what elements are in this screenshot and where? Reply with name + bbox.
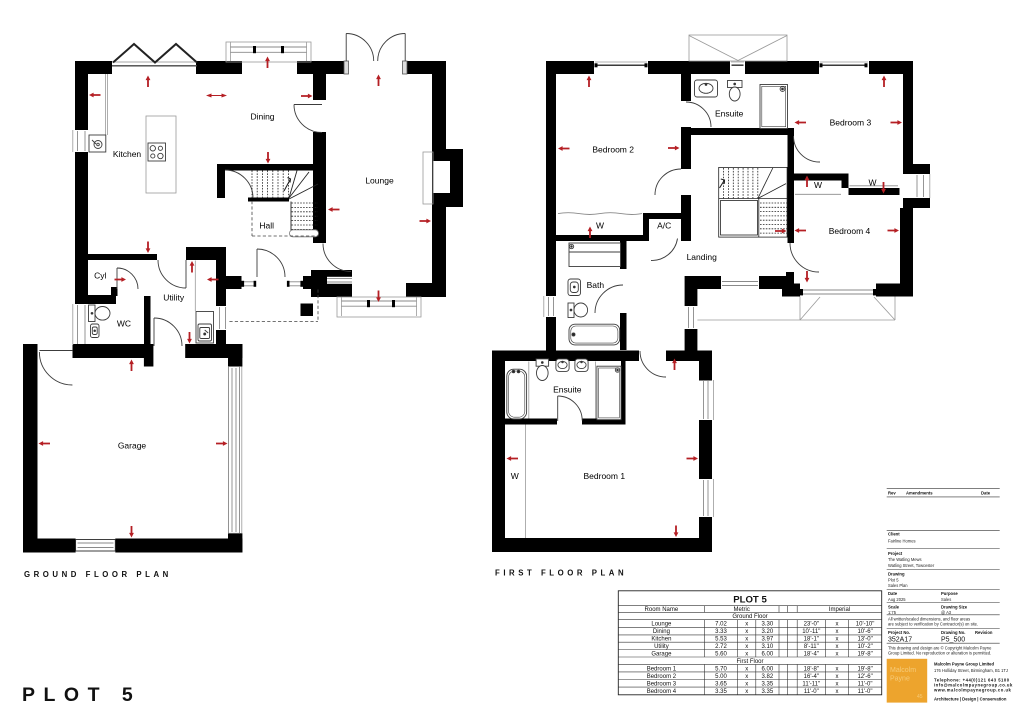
svg-text:Malcolm Payne Group Limited: Malcolm Payne Group Limited — [934, 662, 994, 667]
svg-text:Plot 5: Plot 5 — [888, 577, 899, 582]
svg-text:x: x — [836, 689, 839, 695]
svg-text:x: x — [836, 674, 839, 680]
svg-text:Sales: Sales — [941, 597, 951, 602]
svg-text:Bedroom 3: Bedroom 3 — [647, 682, 677, 688]
svg-text:WC: WC — [117, 319, 131, 329]
svg-text:Architecture | Design | Conser: Architecture | Design | Conservation — [934, 697, 1007, 702]
svg-text:Garage: Garage — [118, 441, 147, 451]
svg-text:Bedroom 2: Bedroom 2 — [592, 145, 634, 155]
svg-text:18'-8": 18'-8" — [804, 667, 819, 673]
svg-text:11'-11": 11'-11" — [802, 682, 820, 688]
svg-text:Imperial: Imperial — [829, 607, 850, 613]
svg-text:www.malcolmpaynegroup.co.uk: www.malcolmpaynegroup.co.uk — [933, 688, 1012, 693]
svg-text:Kitchen: Kitchen — [113, 149, 142, 159]
svg-text:x: x — [836, 622, 839, 628]
svg-text:Metric: Metric — [734, 607, 750, 613]
svg-text:Purpose: Purpose — [941, 591, 958, 596]
svg-text:x: x — [836, 652, 839, 658]
svg-text:Payne: Payne — [890, 676, 910, 683]
svg-text:Date: Date — [888, 591, 898, 596]
svg-text:3.65: 3.65 — [715, 682, 727, 688]
svg-text:6.00: 6.00 — [762, 667, 774, 673]
svg-text:Bedroom 2: Bedroom 2 — [647, 674, 677, 680]
svg-text:12'-6": 12'-6" — [857, 674, 872, 680]
svg-text:Dining: Dining — [653, 629, 670, 635]
svg-text:3.82: 3.82 — [762, 674, 774, 680]
svg-text:W: W — [814, 180, 822, 190]
svg-text:Kitchen: Kitchen — [651, 637, 671, 643]
svg-text:5.53: 5.53 — [715, 637, 727, 643]
svg-text:8'-11": 8'-11" — [804, 644, 819, 650]
svg-text:3.33: 3.33 — [715, 629, 727, 635]
svg-text:Bedroom 1: Bedroom 1 — [584, 471, 626, 481]
svg-text:x: x — [745, 637, 748, 643]
svg-text:19'-8": 19'-8" — [857, 652, 872, 658]
svg-text:Project No.: Project No. — [888, 630, 910, 635]
svg-text:16'-4": 16'-4" — [804, 674, 819, 680]
svg-text:18'-1": 18'-1" — [804, 637, 819, 643]
svg-text:FIRST FLOOR PLAN: FIRST FLOOR PLAN — [495, 569, 627, 578]
svg-text:W: W — [511, 471, 519, 481]
svg-text:Dining: Dining — [250, 112, 274, 122]
svg-text:Sales Plan: Sales Plan — [888, 583, 908, 588]
svg-text:10'-11": 10'-11" — [802, 629, 820, 635]
svg-text:19'-8": 19'-8" — [857, 667, 872, 673]
svg-text:x: x — [745, 674, 748, 680]
svg-text:Lounge: Lounge — [365, 176, 394, 186]
svg-text:3.20: 3.20 — [762, 629, 774, 635]
svg-text:5.00: 5.00 — [715, 674, 727, 680]
svg-text:Drawing: Drawing — [888, 572, 905, 577]
svg-text:10'-10": 10'-10" — [856, 622, 875, 628]
svg-text:x: x — [745, 622, 748, 628]
svg-text:3.35: 3.35 — [762, 682, 774, 688]
svg-text:3.35: 3.35 — [762, 689, 774, 695]
svg-text:Aug 2025: Aug 2025 — [888, 597, 906, 602]
svg-text:x: x — [836, 644, 839, 650]
svg-text:Amendments: Amendments — [906, 491, 933, 496]
svg-text:2.72: 2.72 — [715, 644, 727, 650]
svg-text:11'-0": 11'-0" — [804, 689, 819, 695]
svg-text:Rev: Rev — [888, 491, 896, 496]
svg-text:Client: Client — [888, 532, 900, 537]
svg-text:P5_500: P5_500 — [941, 637, 965, 644]
svg-text:x: x — [836, 629, 839, 635]
svg-text:Bedroom 4: Bedroom 4 — [829, 226, 871, 236]
svg-text:Revision: Revision — [975, 630, 993, 635]
svg-text:PLOT 5: PLOT 5 — [733, 594, 767, 605]
svg-text:The Watling Mews: The Watling Mews — [888, 557, 922, 562]
svg-text:PLOT 5: PLOT 5 — [22, 684, 141, 706]
svg-text:3.97: 3.97 — [762, 637, 774, 643]
svg-text:x: x — [745, 644, 748, 650]
svg-text:6.00: 6.00 — [762, 652, 774, 658]
svg-text:x: x — [745, 682, 748, 688]
svg-text:Landing: Landing — [687, 252, 718, 262]
svg-text:x: x — [836, 682, 839, 688]
svg-text:GROUND FLOOR PLAN: GROUND FLOOR PLAN — [24, 570, 172, 579]
svg-text:First Floor: First Floor — [737, 659, 764, 665]
svg-text:A/C: A/C — [657, 221, 671, 231]
svg-text:Bedroom 4: Bedroom 4 — [647, 689, 677, 695]
svg-text:Date: Date — [981, 491, 991, 496]
svg-text:Ensuite: Ensuite — [553, 385, 582, 395]
svg-text:Hall: Hall — [259, 221, 274, 231]
svg-text:45: 45 — [917, 694, 923, 700]
svg-text:Malcolm: Malcolm — [890, 667, 916, 674]
svg-text:7.02: 7.02 — [715, 622, 727, 628]
svg-text:are subject to verification by: are subject to verification by Contracto… — [888, 621, 978, 626]
svg-text:Room Name: Room Name — [645, 607, 679, 613]
svg-text:x: x — [745, 652, 748, 658]
svg-text:3.35: 3.35 — [715, 689, 727, 695]
svg-text:5.70: 5.70 — [715, 667, 727, 673]
svg-text:11'-0": 11'-0" — [858, 689, 873, 695]
svg-text:Ground Floor: Ground Floor — [732, 614, 767, 620]
svg-text:x: x — [745, 629, 748, 635]
svg-text:11'-0": 11'-0" — [858, 682, 873, 688]
svg-text:3.30: 3.30 — [762, 622, 774, 628]
svg-text:Bath: Bath — [587, 280, 605, 290]
svg-text:Fairline Homes: Fairline Homes — [888, 538, 916, 543]
svg-text:Drawing Size: Drawing Size — [941, 604, 968, 609]
svg-text:Bedroom 3: Bedroom 3 — [830, 118, 872, 128]
svg-text:Drawing No.: Drawing No. — [941, 630, 965, 635]
svg-text:Utility: Utility — [163, 293, 185, 303]
svg-text:Group Limited. No reproductio: Group Limited. No reproduction or altera… — [888, 651, 991, 656]
svg-text:x: x — [836, 637, 839, 643]
svg-text:1:75: 1:75 — [888, 610, 897, 615]
svg-text:x: x — [745, 689, 748, 695]
svg-text:W: W — [596, 221, 604, 231]
svg-text:18'-4": 18'-4" — [804, 652, 819, 658]
svg-text:5.60: 5.60 — [715, 652, 727, 658]
svg-text:x: x — [836, 667, 839, 673]
svg-text:Watling Street, Towcester: Watling Street, Towcester — [888, 563, 935, 568]
svg-text:352A17: 352A17 — [888, 637, 912, 644]
svg-text:Bedroom 1: Bedroom 1 — [647, 667, 677, 673]
svg-text:Project: Project — [888, 551, 903, 556]
svg-text:@ A3: @ A3 — [941, 610, 952, 615]
svg-text:Garage: Garage — [651, 652, 672, 658]
svg-text:Utility: Utility — [654, 644, 669, 650]
svg-text:Ensuite: Ensuite — [715, 109, 744, 119]
svg-text:176 Holliday Street, Birmingha: 176 Holliday Street, Birmingham, B1 1TJ — [934, 668, 1008, 673]
svg-text:13'-0": 13'-0" — [857, 637, 872, 643]
svg-text:Scale: Scale — [888, 604, 900, 609]
svg-text:W: W — [868, 178, 876, 188]
svg-text:10'-6": 10'-6" — [857, 629, 872, 635]
svg-text:10'-2": 10'-2" — [857, 644, 872, 650]
svg-text:x: x — [745, 667, 748, 673]
svg-text:23'-0": 23'-0" — [804, 622, 819, 628]
svg-text:3.10: 3.10 — [762, 644, 774, 650]
svg-text:Lounge: Lounge — [651, 622, 672, 628]
svg-text:Cyl: Cyl — [94, 271, 106, 281]
